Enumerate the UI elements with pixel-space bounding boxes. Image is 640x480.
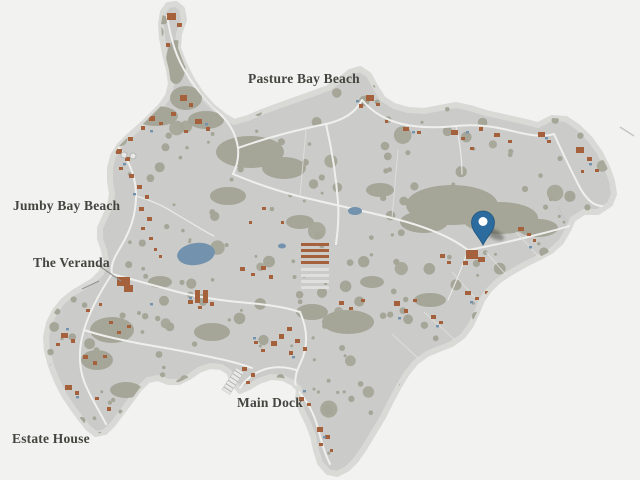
island-map[interactable]: Pasture Bay Beach Jumby Bay Beach The Ve…: [0, 0, 640, 480]
location-pin-icon[interactable]: [465, 205, 501, 249]
label-main-dock: Main Dock: [237, 395, 303, 411]
label-jumby-bay-beach: Jumby Bay Beach: [13, 198, 120, 214]
label-estate-house: Estate House: [12, 431, 90, 447]
label-pasture-bay-beach: Pasture Bay Beach: [248, 71, 360, 87]
label-the-veranda: The Veranda: [33, 255, 110, 271]
